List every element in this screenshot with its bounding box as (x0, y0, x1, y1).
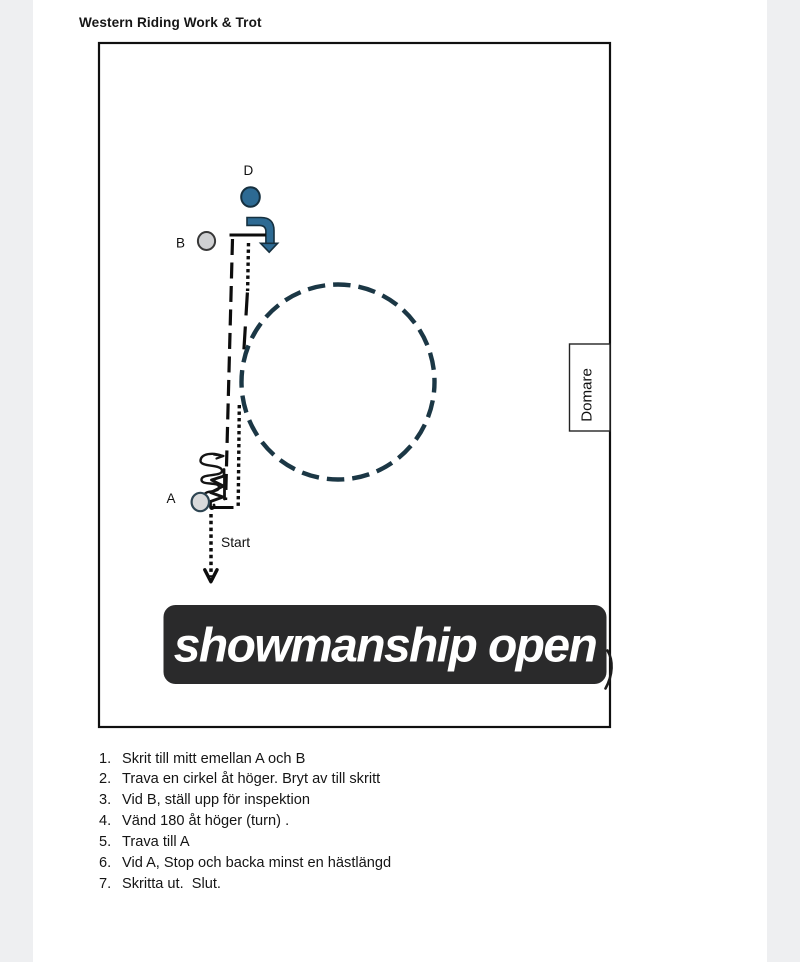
svg-text:A: A (167, 491, 176, 506)
svg-text:showmanship open: showmanship open (174, 620, 597, 673)
svg-text:D: D (244, 163, 254, 178)
svg-text:Domare: Domare (579, 368, 596, 422)
svg-text:Start: Start (221, 535, 250, 550)
svg-text:B: B (176, 236, 185, 251)
